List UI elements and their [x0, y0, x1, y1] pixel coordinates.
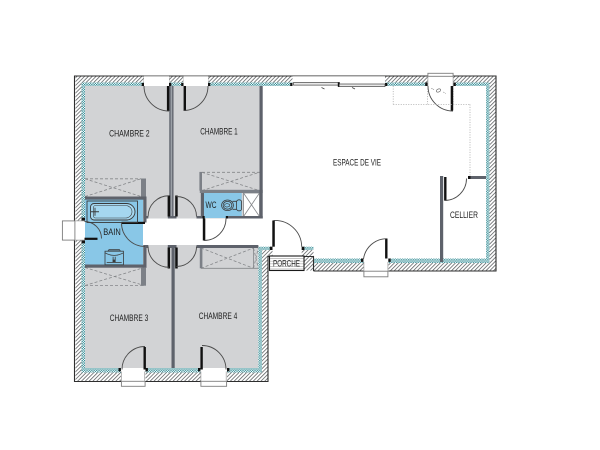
- svg-text:CHAMBRE 1: CHAMBRE 1: [200, 127, 238, 137]
- svg-text:CELLIER: CELLIER: [450, 210, 478, 220]
- svg-text:CHAMBRE 3: CHAMBRE 3: [110, 313, 149, 323]
- svg-text:ESPACE DE VIE: ESPACE DE VIE: [333, 158, 381, 168]
- svg-text:PORCHE: PORCHE: [273, 258, 300, 269]
- svg-text:CHAMBRE 2: CHAMBRE 2: [109, 128, 150, 138]
- svg-text:BAIN: BAIN: [103, 227, 121, 237]
- svg-text:WC: WC: [206, 200, 217, 210]
- svg-text:CHAMBRE 4: CHAMBRE 4: [199, 311, 238, 321]
